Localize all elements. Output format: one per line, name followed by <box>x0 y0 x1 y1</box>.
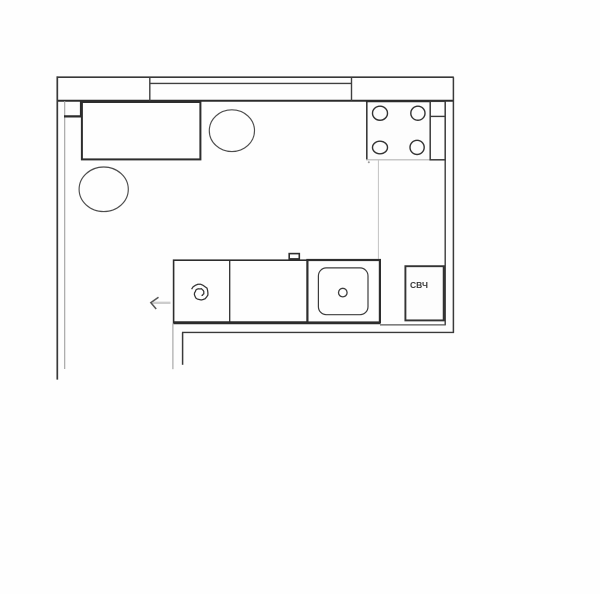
svg-text:СВЧ: СВЧ <box>410 280 428 290</box>
